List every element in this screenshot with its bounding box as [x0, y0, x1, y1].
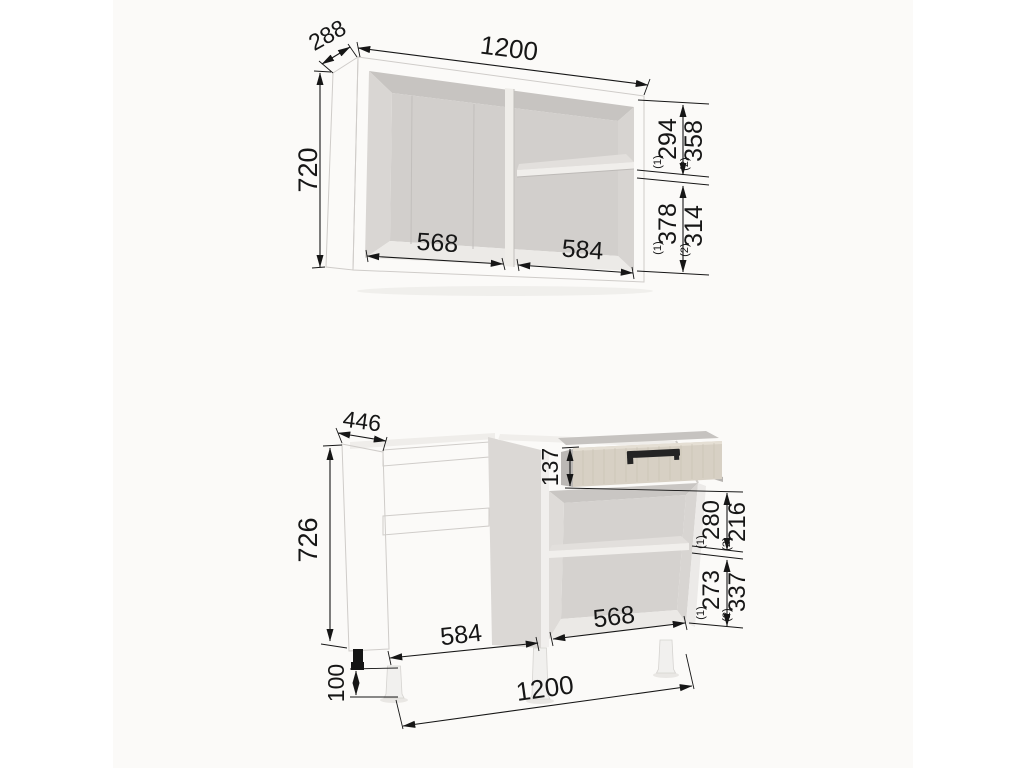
wall-left-width-label: 568 [416, 228, 459, 258]
base-lower-v2-label: 337 [724, 572, 751, 612]
wall-lower-v2-mark: (2) [679, 243, 691, 256]
wall-right-width-label: 584 [561, 235, 605, 266]
furniture-technical-drawing: 288 1200 720 294 (1) 358 (2) 378 (1) 314… [0, 0, 1024, 768]
base-lower-v2-mark: (2) [721, 608, 733, 621]
wall-height-label: 720 [293, 147, 323, 192]
base-right-width-label: 568 [592, 601, 637, 634]
leg-front-left [384, 666, 404, 698]
base-lower-v1-mark: (1) [695, 606, 707, 619]
wall-lower-v1-mark: (1) [652, 241, 664, 254]
wall-upper-v2-label: 358 [680, 120, 708, 162]
leg-front-right [657, 640, 676, 673]
wall-upper-v1-mark: (1) [652, 155, 664, 168]
base-upper-v2-label: 216 [724, 502, 751, 542]
adjustable-foot-black [353, 649, 363, 663]
drawer-height-label: 137 [537, 448, 563, 486]
wall-lower-v1-label: 378 [654, 203, 682, 245]
wall-divider [505, 88, 514, 267]
base-interior-back [561, 495, 686, 619]
wall-interior-left-wall [365, 71, 392, 258]
base-upper-v2-mark: (2) [721, 537, 733, 550]
base-left-width-label: 584 [439, 619, 484, 652]
base-leg-height-label: 100 [323, 664, 349, 702]
base-depth-label: 446 [341, 406, 382, 437]
wall-cabinet-shadow [357, 286, 653, 296]
base-height-label: 726 [293, 517, 323, 562]
drawing-canvas: 288 1200 720 294 (1) 358 (2) 378 (1) 314… [0, 0, 1024, 768]
base-upper-v1-label: 280 [698, 500, 725, 540]
wall-upper-v1-label: 294 [654, 118, 682, 160]
base-upper-v1-mark: (1) [695, 535, 707, 548]
base-divider-face [488, 437, 541, 648]
wall-lower-v2-label: 314 [680, 205, 708, 247]
wall-upper-v2-mark: (2) [679, 157, 691, 170]
wall-interior-right-wall [618, 107, 634, 271]
base-lower-v1-label: 273 [698, 570, 725, 610]
